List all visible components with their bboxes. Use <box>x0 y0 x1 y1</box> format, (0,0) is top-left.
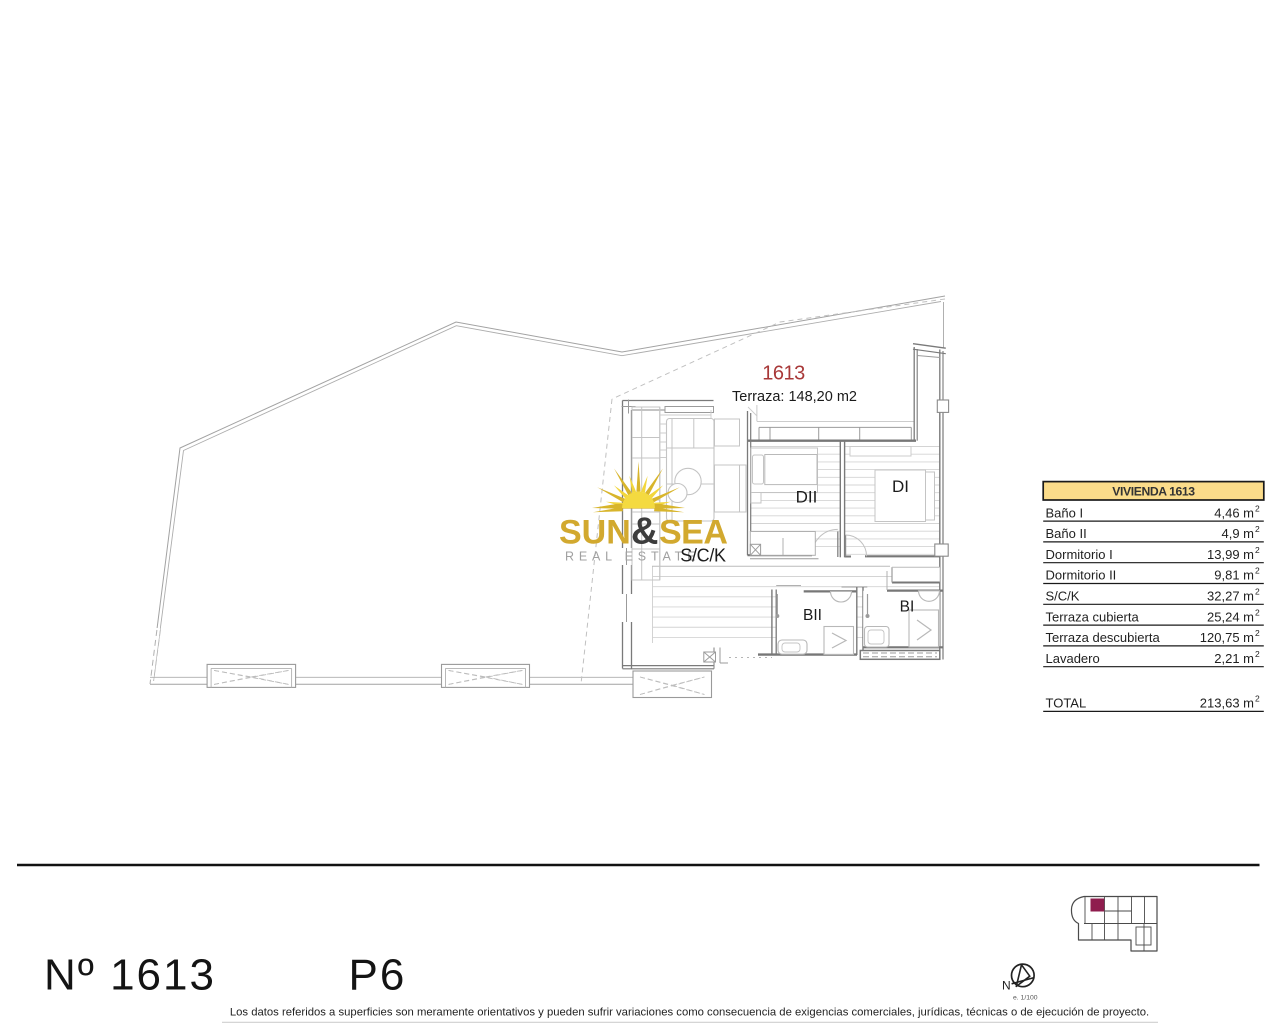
svg-text:213,63 m: 213,63 m <box>1200 696 1254 711</box>
svg-text:2: 2 <box>1255 545 1260 555</box>
svg-text:2: 2 <box>1255 503 1260 513</box>
svg-text:2: 2 <box>1255 649 1260 659</box>
svg-text:Lavadero: Lavadero <box>1046 651 1100 666</box>
svg-text:2,21 m: 2,21 m <box>1214 651 1254 666</box>
svg-text:BI: BI <box>900 599 915 616</box>
svg-text:9,81 m: 9,81 m <box>1214 568 1254 583</box>
svg-text:&: & <box>631 511 658 553</box>
svg-text:4,46 m: 4,46 m <box>1214 505 1254 520</box>
svg-text:2: 2 <box>1255 587 1260 597</box>
svg-text:e. 1/100: e. 1/100 <box>1013 995 1038 1002</box>
svg-text:DII: DII <box>796 488 818 507</box>
svg-text:Dormitorio II: Dormitorio II <box>1046 568 1117 583</box>
svg-text:S/C/K: S/C/K <box>1046 589 1080 604</box>
svg-text:Los datos referidos a superfic: Los datos referidos a superficies son me… <box>230 1007 1149 1019</box>
svg-text:Terraza descubierta: Terraza descubierta <box>1046 630 1161 645</box>
svg-text:S/C/K: S/C/K <box>680 546 726 566</box>
svg-text:25,24 m: 25,24 m <box>1207 609 1254 624</box>
svg-text:Dormitorio I: Dormitorio I <box>1046 547 1113 562</box>
svg-text:4,9 m: 4,9 m <box>1221 526 1254 541</box>
svg-text:1613: 1613 <box>762 363 805 385</box>
svg-text:Terraza cubierta: Terraza cubierta <box>1046 609 1140 624</box>
svg-text:13,99 m: 13,99 m <box>1207 547 1254 562</box>
svg-text:120,75 m: 120,75 m <box>1200 630 1254 645</box>
svg-text:2: 2 <box>1255 607 1260 617</box>
svg-text:2: 2 <box>1255 566 1260 576</box>
svg-text:32,27 m: 32,27 m <box>1207 589 1254 604</box>
svg-text:SUN: SUN <box>559 514 631 552</box>
svg-text:P6: P6 <box>349 951 407 1000</box>
svg-text:Nº 1613: Nº 1613 <box>44 951 216 1000</box>
svg-text:TOTAL: TOTAL <box>1046 696 1087 711</box>
svg-text:Baño I: Baño I <box>1046 505 1084 520</box>
svg-text:BII: BII <box>803 607 822 624</box>
svg-text:2: 2 <box>1255 694 1260 704</box>
svg-text:N: N <box>1002 979 1011 993</box>
svg-text:Terraza: 148,20 m2: Terraza: 148,20 m2 <box>732 389 857 405</box>
svg-text:DI: DI <box>892 477 909 496</box>
svg-text:2: 2 <box>1255 524 1260 534</box>
svg-text:VIVIENDA 1613: VIVIENDA 1613 <box>1112 484 1195 498</box>
svg-text:2: 2 <box>1255 628 1260 638</box>
svg-text:Baño II: Baño II <box>1046 526 1087 541</box>
